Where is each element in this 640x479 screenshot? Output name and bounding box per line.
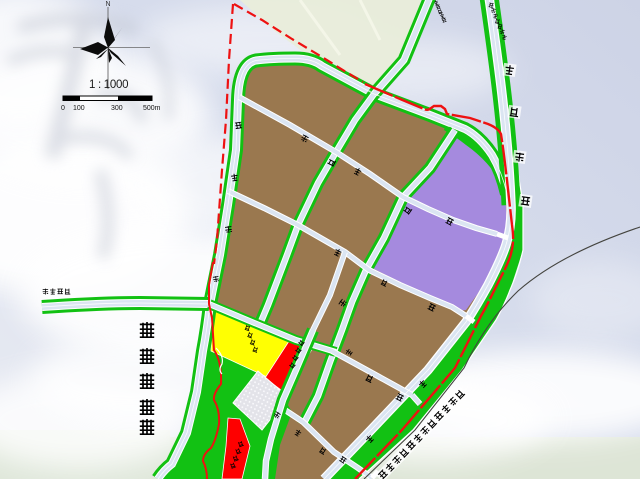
svg-text:0: 0 — [61, 105, 65, 112]
svg-text:N: N — [105, 1, 110, 8]
svg-text:500m: 500m — [143, 105, 161, 112]
svg-text:100: 100 — [73, 105, 85, 112]
svg-text:300: 300 — [111, 105, 123, 112]
svg-text:1 : 1000: 1 : 1000 — [89, 79, 128, 91]
